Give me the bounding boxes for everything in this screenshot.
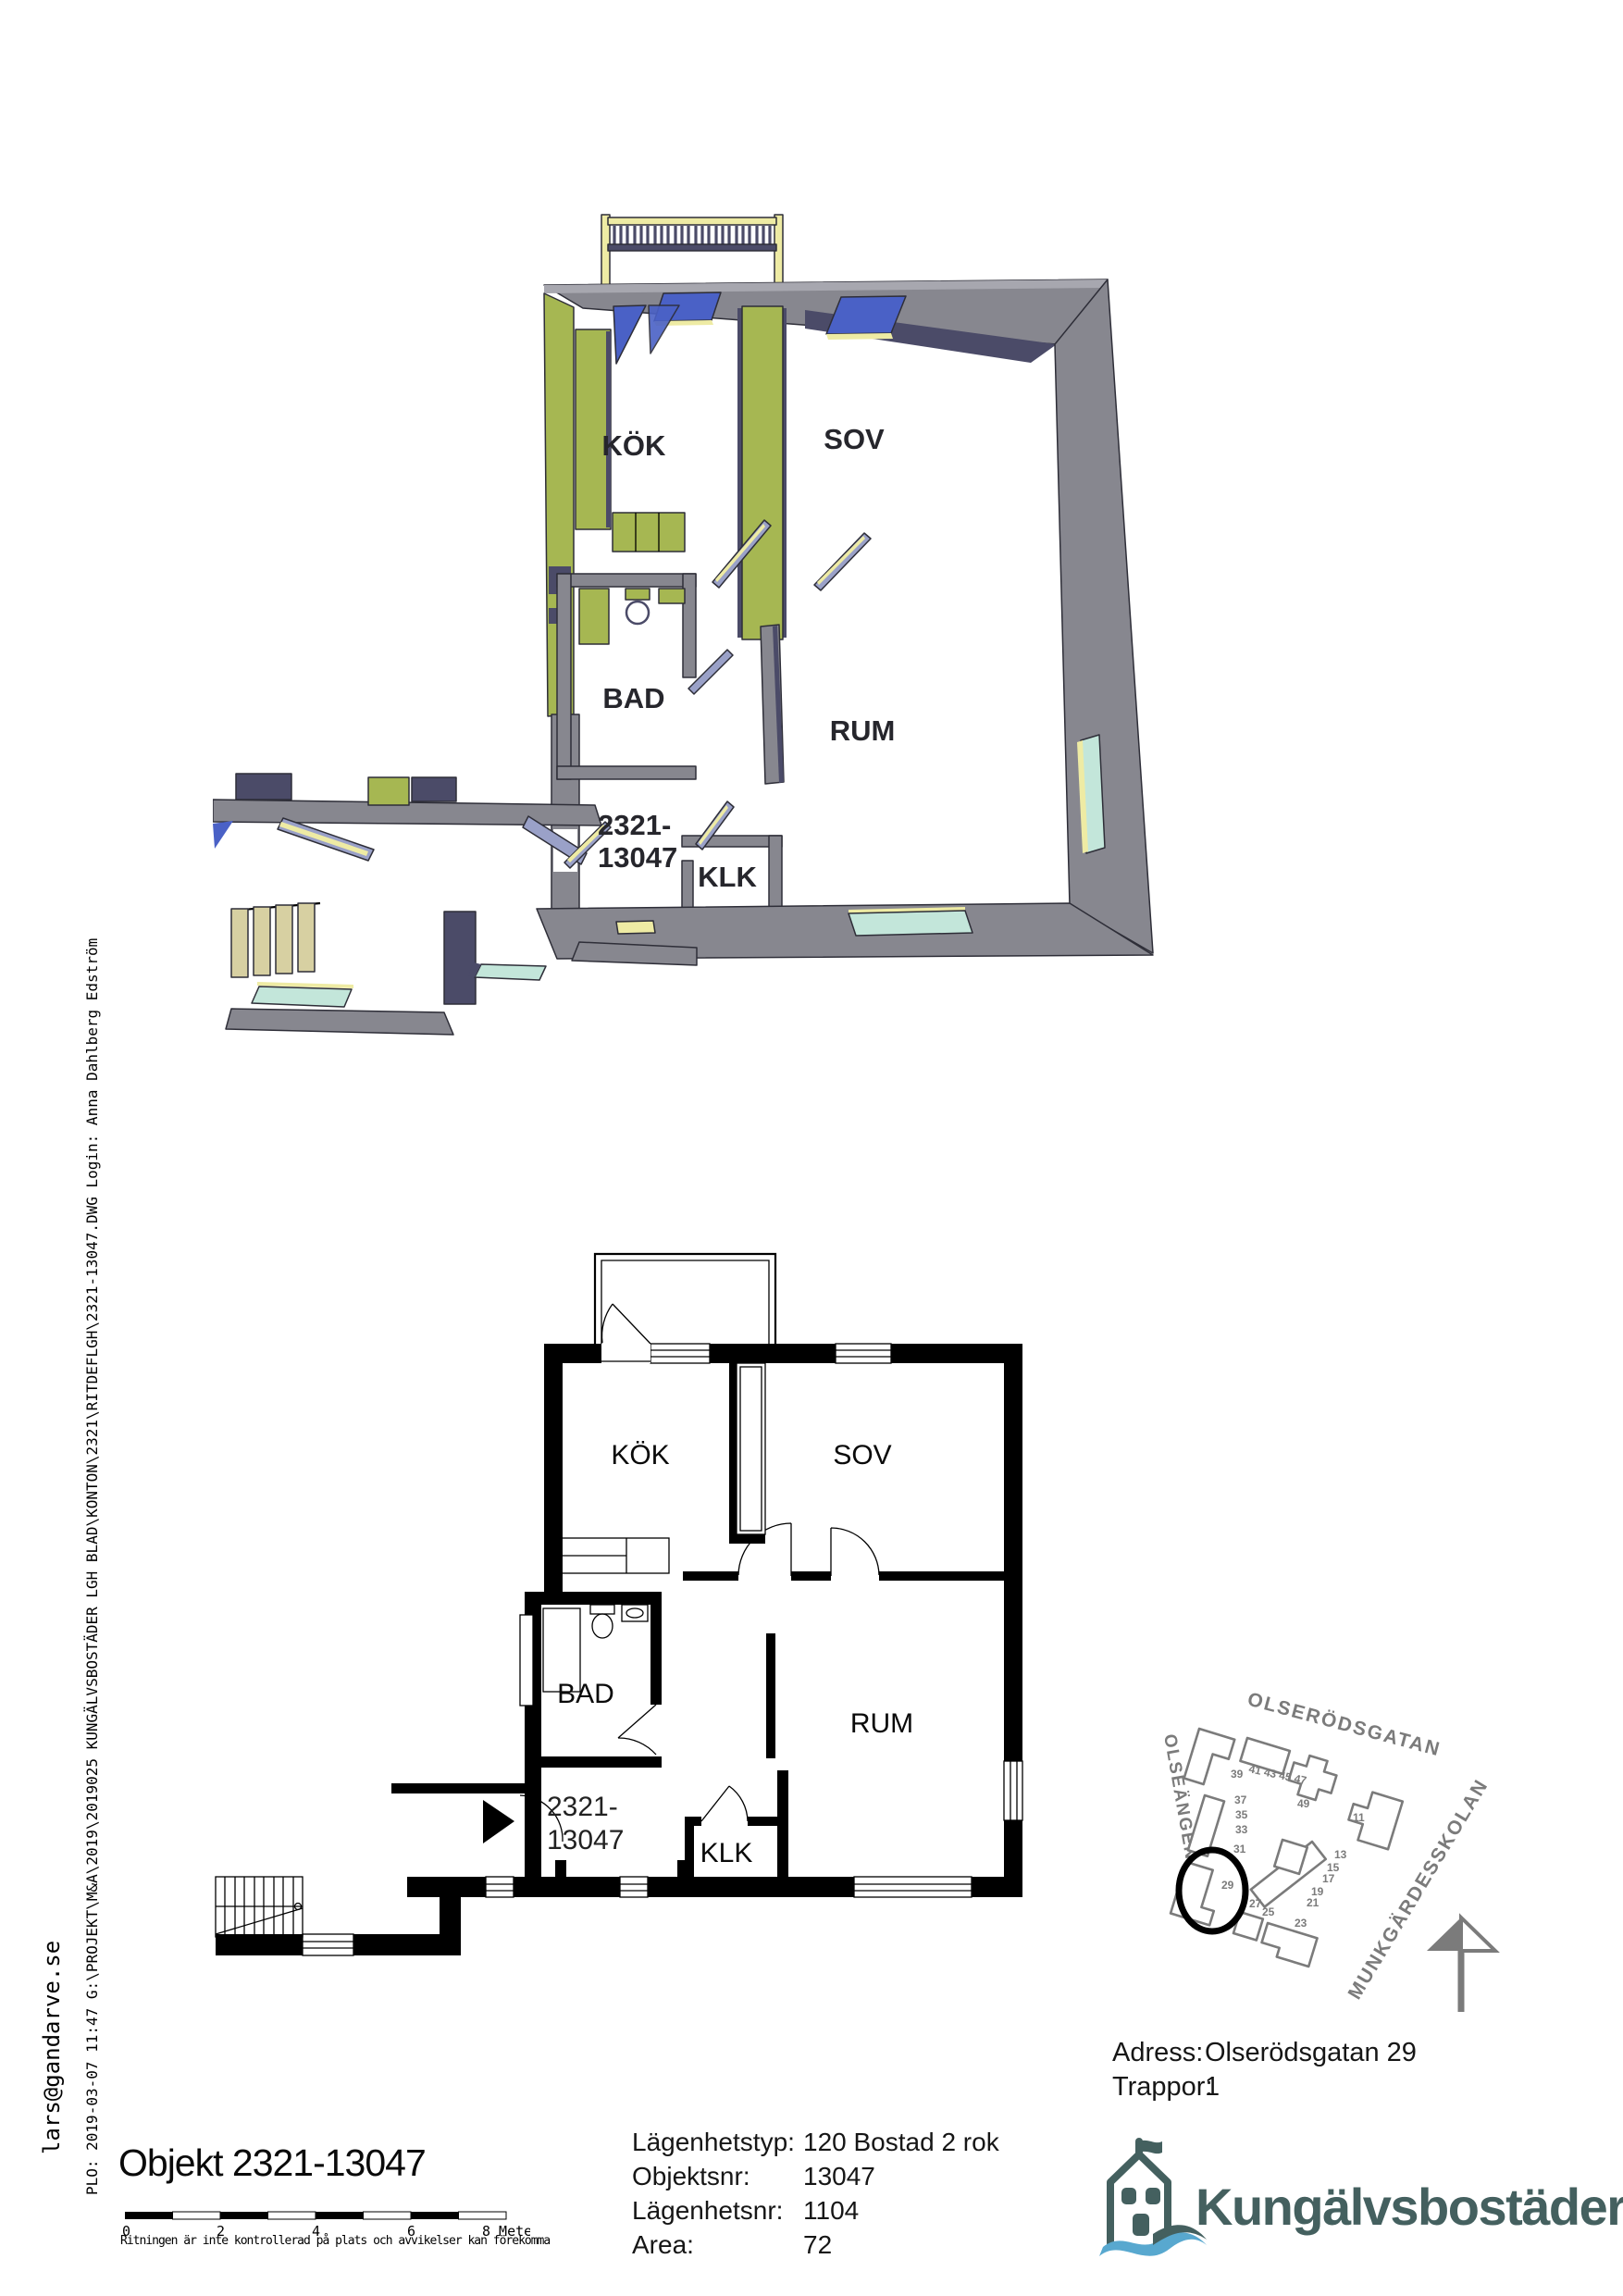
svg-text:21: 21 xyxy=(1307,1896,1319,1909)
room-label-sov-2d: SOV xyxy=(833,1440,891,1471)
info-label: Lägenhetsnr: xyxy=(632,2193,803,2228)
balcony-railing xyxy=(601,215,783,287)
svg-text:31: 31 xyxy=(1233,1843,1246,1855)
room-label-bad-2d: BAD xyxy=(557,1679,614,1709)
svg-text:23: 23 xyxy=(1295,1917,1307,1930)
unit-number-2d-line1: 2321- xyxy=(547,1792,618,1822)
site-map: OLSERÖDSGATAN OLSEÄNGEN MUNKGÄRDESSKOLAN… xyxy=(1157,1657,1564,2027)
room-label-kok-3d: KÖK xyxy=(602,429,667,462)
rum-window-3d xyxy=(849,911,973,936)
site-buildings xyxy=(1171,1729,1403,1967)
floorplan-2d: KÖK SOV BAD RUM KLK 2321- 13047 xyxy=(194,1240,1046,1971)
svg-text:17: 17 xyxy=(1322,1872,1335,1885)
balcony-door-leaf xyxy=(613,305,646,364)
object-title: Objekt 2321-13047 xyxy=(118,2141,426,2185)
bottom-wall-3d xyxy=(537,903,1153,965)
info-value: 1104 xyxy=(803,2193,859,2228)
room-label-sov-3d: SOV xyxy=(824,423,885,455)
address-value: 1 xyxy=(1205,2070,1220,2104)
info-value: 72 xyxy=(803,2228,832,2262)
unit-number-3d-line1: 2321- xyxy=(598,809,671,841)
unit-number-3d-line2: 13047 xyxy=(598,841,677,874)
svg-text:25: 25 xyxy=(1262,1905,1275,1918)
sidebar-email: lars@gandarve.se xyxy=(39,1941,65,2154)
room-label-klk-3d: KLK xyxy=(698,861,757,893)
address-label: Trappor: xyxy=(1112,2070,1205,2104)
kitchen-counter-3d xyxy=(613,513,685,552)
address-value: Olserödsgatan 29 xyxy=(1205,2036,1417,2070)
svg-text:11: 11 xyxy=(1353,1811,1365,1824)
svg-text:27: 27 xyxy=(1249,1897,1262,1910)
address-label: Adress: xyxy=(1112,2036,1205,2070)
unit-number-2d-line2: 13047 xyxy=(547,1825,624,1855)
svg-text:13: 13 xyxy=(1334,1848,1347,1861)
balcony-2d xyxy=(595,1254,775,1344)
walls-2d xyxy=(216,1344,1022,1955)
room-label-rum-3d: RUM xyxy=(830,714,896,747)
divider-wall-3d xyxy=(712,306,871,639)
svg-text:49: 49 xyxy=(1297,1797,1310,1810)
svg-text:35: 35 xyxy=(1235,1808,1248,1821)
disclaimer-text: Ritningen är inte kontrollerad på plats … xyxy=(120,2234,550,2248)
info-value: 13047 xyxy=(803,2159,875,2193)
apartment-info-block: Lägenhetstyp:120 Bostad 2 rok Objektsnr:… xyxy=(632,2125,999,2262)
drawing-sheet: lars@gandarve.se PLO: 2019-03-07 11:47 G… xyxy=(0,0,1623,2296)
bad-room-3d xyxy=(557,574,733,779)
info-label: Objektsnr: xyxy=(632,2159,803,2193)
top-wall-3d xyxy=(544,279,1108,364)
floorplan-3d: KÖK SOV BAD RUM KLK 2321- 13047 xyxy=(213,130,1258,1092)
svg-text:39: 39 xyxy=(1231,1768,1244,1781)
svg-text:37: 37 xyxy=(1234,1793,1247,1806)
info-label: Area: xyxy=(632,2228,803,2262)
north-arrow-icon xyxy=(1427,1917,1495,2012)
room-label-kok-2d: KÖK xyxy=(611,1440,669,1471)
address-row: Adress:Olserödsgatan 29 xyxy=(1112,2036,1417,2070)
room-label-klk-2d: KLK xyxy=(700,1838,753,1868)
svg-text:29: 29 xyxy=(1221,1879,1234,1892)
right-wall-3d xyxy=(1055,279,1153,953)
info-label: Lägenhetstyp: xyxy=(632,2125,803,2159)
sidebar-plot-info: PLO: 2019-03-07 11:47 G:\PROJEKT\M&A\201… xyxy=(83,938,101,2195)
info-row: Objektsnr:13047 xyxy=(632,2159,999,2193)
kungalvsbostader-logo-icon xyxy=(1097,2134,1210,2282)
address-block: Adress:Olserödsgatan 29 Trappor:1 xyxy=(1112,2036,1417,2104)
address-row: Trappor:1 xyxy=(1112,2070,1417,2104)
info-row: Area:72 xyxy=(632,2228,999,2262)
info-row: Lägenhetstyp:120 Bostad 2 rok xyxy=(632,2125,999,2159)
brand-wordmark: Kungälvsbostäder xyxy=(1196,2177,1623,2237)
svg-text:33: 33 xyxy=(1235,1823,1248,1836)
room-label-bad-3d: BAD xyxy=(602,682,664,714)
info-value: 120 Bostad 2 rok xyxy=(803,2125,999,2159)
info-row: Lägenhetsnr:1104 xyxy=(632,2193,999,2228)
stairs-2d xyxy=(216,1877,303,1937)
room-label-rum-2d: RUM xyxy=(850,1708,913,1739)
entrance-arrow xyxy=(483,1800,514,1843)
windows-2d xyxy=(303,1344,1022,1955)
